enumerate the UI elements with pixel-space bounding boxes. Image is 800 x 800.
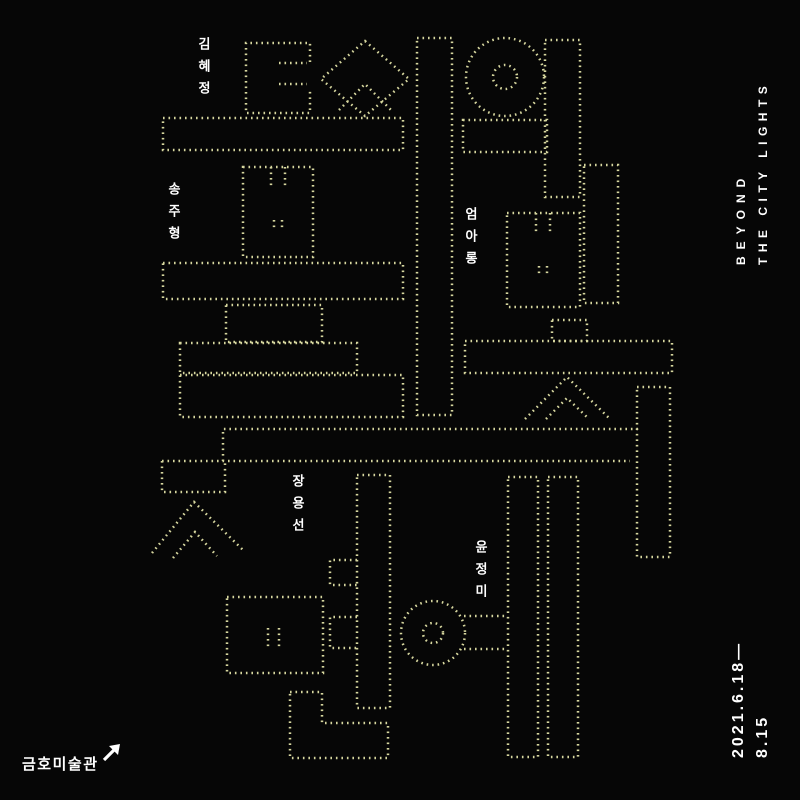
exhibition-poster: 김혜정 송주형 엄아롱 장용선 윤정미 BEYOND THE CITY LIGH…: [0, 0, 800, 800]
dotted-letter-pyeon: [227, 597, 388, 758]
artist-name-4: 장용선: [291, 474, 304, 540]
artist-name-5: 윤정미: [474, 540, 487, 606]
artist-name-1: 김혜정: [197, 37, 210, 103]
dotted-letter-ui: [463, 38, 580, 197]
venue-name: 금호미술관: [22, 753, 99, 774]
dotted-letter-bul: [163, 167, 403, 417]
english-title-line1: BEYOND: [735, 172, 747, 265]
english-title-line2: THE CITY LIGHTS: [757, 81, 769, 265]
dotted-title-artwork: [0, 0, 800, 800]
dotted-letter-bit: [465, 165, 672, 557]
dotted-letter-e: [401, 477, 578, 757]
artist-name-3: 엄아롱: [464, 207, 477, 273]
venue-logo: 금호미술관: [22, 753, 123, 774]
dotted-letter-si: [321, 38, 452, 415]
connecting-rails: [162, 429, 638, 461]
dotted-letter-jeo: [152, 461, 390, 708]
artist-name-2: 송주형: [167, 182, 180, 248]
arrow-up-right-icon: [101, 741, 123, 763]
exhibition-dates-end: 8.15: [755, 715, 771, 758]
exhibition-dates-start: 2021.6.18—: [731, 641, 747, 758]
